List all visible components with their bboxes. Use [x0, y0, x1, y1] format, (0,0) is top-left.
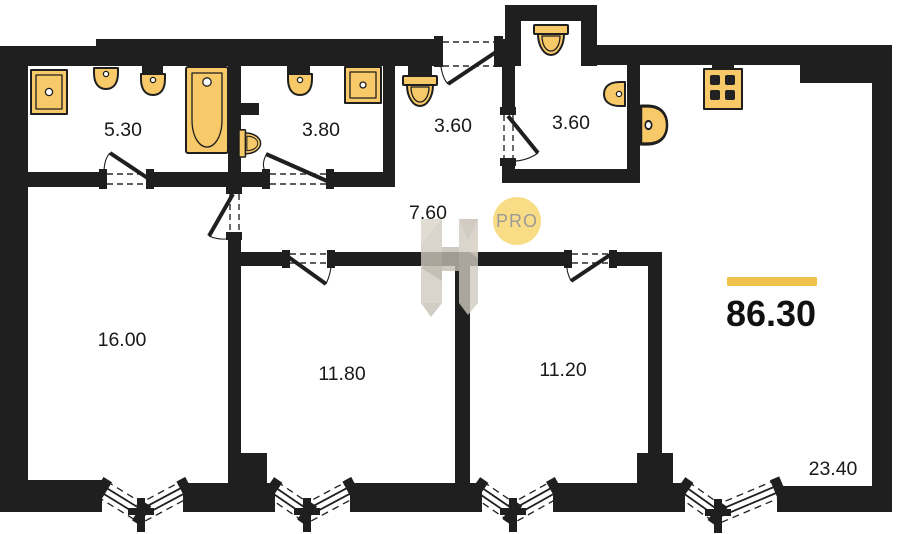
room-label-bathroom: 5.30 — [104, 119, 142, 141]
wall-segment — [553, 483, 685, 512]
wall-segment — [597, 45, 803, 65]
wall-segment — [241, 252, 288, 266]
bathtub-icon — [186, 67, 228, 153]
sink-icon — [94, 68, 118, 89]
sink-icon — [141, 74, 165, 95]
wall-segment — [637, 453, 673, 483]
wall-segment — [383, 65, 395, 183]
pro-badge: PRO — [493, 197, 541, 245]
wall-segment — [502, 169, 640, 183]
wall-segment — [505, 5, 521, 66]
wall-segment — [777, 486, 892, 512]
wall-segment — [241, 103, 259, 115]
total-area-accent-bar — [727, 277, 817, 286]
toilet-mount — [408, 66, 432, 76]
total-area: 86.30 — [726, 277, 817, 334]
wall-segment — [28, 172, 103, 187]
wall-segment — [96, 39, 438, 66]
wall-segment — [612, 252, 662, 266]
room-label-bathroom-2: 3.60 — [552, 112, 590, 134]
stove-icon — [704, 63, 742, 109]
wall-segment — [183, 483, 275, 512]
sink-unit-icon — [345, 67, 381, 103]
sink-icon — [288, 74, 312, 95]
floor-plan-page: PRO 5.30 3.80 3.60 3.60 7.60 16.00 11.80… — [0, 0, 900, 534]
room-label-entry: 3.60 — [434, 115, 472, 137]
wall-segment — [0, 46, 28, 512]
wall-segment — [627, 65, 640, 175]
wall-segment — [228, 65, 241, 187]
wall-segment — [872, 65, 892, 512]
room-label-bedroom-3: 11.20 — [539, 359, 587, 381]
wall-segment — [0, 480, 102, 512]
room-label-kitchen-living: 23.40 — [809, 458, 858, 480]
washing-machine-icon — [31, 70, 67, 114]
wall-segment — [228, 236, 241, 483]
floor-plan-svg: PRO 5.30 3.80 3.60 3.60 7.60 16.00 11.80… — [0, 0, 900, 534]
pro-badge-label: PRO — [496, 211, 538, 231]
wall-segment — [0, 46, 102, 66]
wall-segment — [328, 172, 395, 187]
wall-segment — [237, 453, 267, 485]
total-area-label: 86.30 — [726, 293, 816, 334]
room-label-wc: 3.80 — [302, 119, 340, 141]
room-label-bedroom-1: 16.00 — [98, 329, 147, 351]
kitchen-sink-icon — [641, 106, 667, 144]
sink-icon — [604, 82, 625, 106]
room-label-bedroom-2: 11.80 — [318, 363, 366, 385]
room-label-corridor: 7.60 — [409, 202, 447, 224]
wall-segment — [150, 172, 228, 187]
wall-segment — [581, 5, 597, 66]
wall-segment — [350, 483, 482, 512]
wall-segment — [648, 252, 662, 483]
